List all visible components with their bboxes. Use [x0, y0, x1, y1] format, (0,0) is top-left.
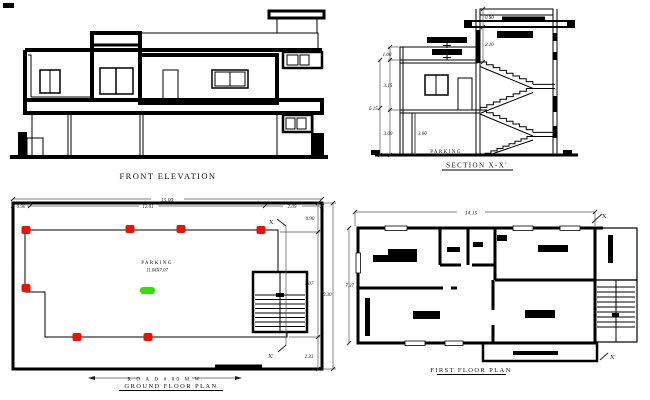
section-marker-bottom: X'	[268, 354, 273, 360]
first-floor-title: FIRST FLOOR PLAN	[430, 367, 512, 374]
section-geometry	[371, 9, 578, 156]
first-floor-geometry	[356, 226, 637, 361]
first-floor-plan-panel: 14.15 7.37 X X' FIRST FLOOR PLAN	[345, 195, 650, 400]
section-marker-bottom: X'	[610, 355, 615, 361]
section-drawing: 1.00 3.15 6.15 3.00 3.00 0.90 2.10 PARKI…	[360, 0, 650, 195]
column-markers	[22, 225, 266, 341]
ground-floor-drawing: X X' 15.00 0.90 12.01 2.09	[0, 195, 350, 400]
dim-10-30: 10.30	[320, 293, 332, 298]
front-elevation-geometry	[3, 3, 328, 157]
section-dimensions: 1.00 3.15 6.15 3.00 3.00 0.90 2.10	[369, 7, 494, 157]
parking-label: PARKING	[141, 261, 173, 266]
dim-15-00: 15.00	[161, 198, 174, 204]
dim-0-90-right: 0.90	[306, 217, 315, 222]
first-floor-dimensions: 14.15 7.37	[346, 210, 598, 346]
parking-size: 11.04X7.07	[146, 269, 168, 274]
dim-0-90-top: 0.90	[17, 205, 26, 210]
dim-2-33: 2.33	[305, 355, 314, 360]
dim-2-10: 2.10	[485, 43, 494, 48]
parking-spot	[140, 287, 155, 294]
section-marker-top: X	[602, 214, 607, 220]
dim-2-09: 2.09	[288, 205, 297, 210]
section-title: SECTION X-X'	[446, 162, 508, 170]
dim-3-00-inner: 3.00	[418, 132, 427, 137]
section-parking-label: PARKING	[430, 150, 462, 155]
ground-floor-title: GROUND FLOOR PLAN	[124, 383, 217, 390]
dim-7-37: 7.37	[346, 284, 355, 289]
dim-0-90: 0.90	[485, 16, 494, 21]
ground-floor-dimensions: 15.00 0.90 12.01 2.09	[11, 197, 336, 371]
road-label: R O A D 6.00 M.W.	[127, 378, 204, 383]
ground-floor-geometry	[13, 203, 322, 371]
ground-floor-plan-panel: X X' 15.00 0.90 12.01 2.09	[0, 195, 350, 400]
dim-3-00: 3.00	[384, 132, 393, 137]
first-floor-drawing: 14.15 7.37 X X' FIRST FLOOR PLAN	[345, 195, 650, 400]
dim-12-01: 12.01	[142, 205, 153, 210]
dim-1-00: 1.00	[383, 53, 392, 58]
front-elevation-title: FRONT ELEVATION	[120, 171, 217, 181]
section-panel: 1.00 3.15 6.15 3.00 3.00 0.90 2.10 PARKI…	[360, 0, 650, 195]
road-label-group: R O A D 6.00 M.W.	[88, 376, 242, 383]
dim-14-15: 14.15	[465, 210, 478, 217]
section-line: X X'	[268, 219, 286, 360]
road-arrow-left	[88, 376, 95, 380]
road-arrow-right	[235, 376, 242, 380]
front-elevation-drawing: FRONT ELEVATION	[0, 0, 345, 195]
section-marker-top: X	[269, 220, 274, 226]
cad-sheet: FRONT ELEVATION	[0, 0, 650, 400]
front-elevation-panel: FRONT ELEVATION	[0, 0, 345, 195]
dim-3-15: 3.15	[384, 84, 393, 89]
dim-6-15: 6.15	[369, 107, 378, 112]
dim-7-07: 7.07	[305, 282, 314, 287]
